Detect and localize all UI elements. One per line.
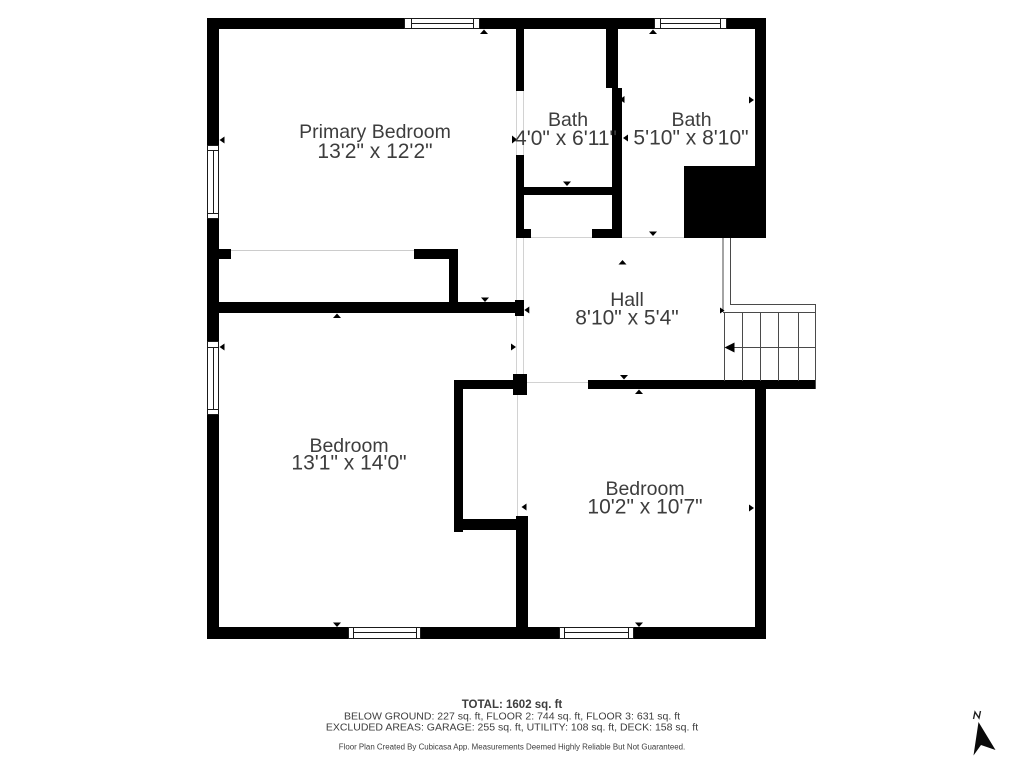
svg-text:TOTAL: 1602 sq. ft: TOTAL: 1602 sq. ft	[462, 699, 563, 711]
svg-text:Floor Plan Created By Cubicasa: Floor Plan Created By Cubicasa App. Meas…	[339, 743, 686, 752]
svg-text:10'2" x 10'7": 10'2" x 10'7"	[587, 496, 702, 519]
svg-text:EXCLUDED AREAS: GARAGE: 255 sq: EXCLUDED AREAS: GARAGE: 255 sq. ft, UTIL…	[326, 722, 698, 734]
svg-text:4'0" x 6'11": 4'0" x 6'11"	[515, 127, 617, 150]
svg-text:5'10" x 8'10": 5'10" x 8'10"	[633, 127, 748, 150]
svg-text:13'1" x 14'0": 13'1" x 14'0"	[291, 452, 406, 475]
svg-text:8'10" x 5'4": 8'10" x 5'4"	[575, 307, 679, 330]
svg-text:13'2" x 12'2": 13'2" x 12'2"	[317, 140, 432, 163]
